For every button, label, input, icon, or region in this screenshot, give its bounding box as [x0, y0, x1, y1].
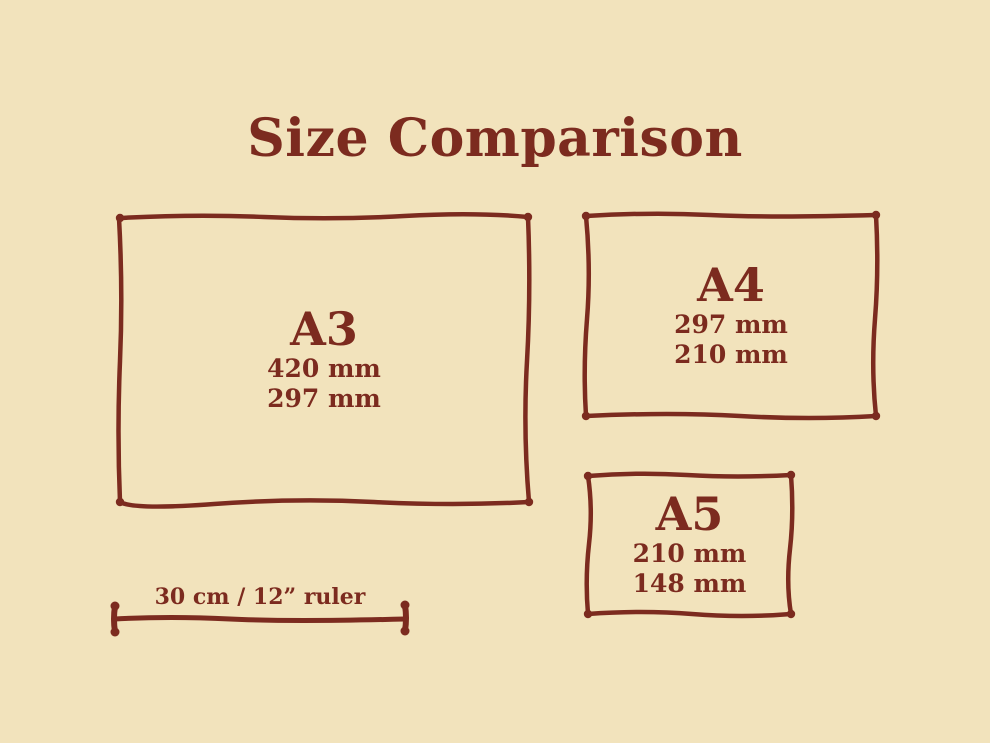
paper-a4-label: A4 297 mm 210 mm — [674, 261, 788, 370]
paper-a5-name: A5 — [633, 490, 747, 538]
paper-a3: A3 420 mm 297 mm — [114, 211, 534, 509]
paper-a5-width-dim: 210 mm — [633, 539, 747, 570]
canvas: Size Comparison A3 420 mm 297 mm A4 297 … — [0, 0, 990, 743]
paper-a4-width-dim: 297 mm — [674, 310, 788, 341]
paper-a3-name: A3 — [267, 305, 381, 353]
paper-a5-label: A5 210 mm 148 mm — [633, 490, 747, 599]
paper-a4: A4 297 mm 210 mm — [580, 209, 882, 423]
paper-a4-height-dim: 210 mm — [674, 340, 788, 371]
page-title: Size Comparison — [0, 110, 990, 167]
paper-a5: A5 210 mm 148 mm — [582, 469, 797, 621]
paper-a3-height-dim: 297 mm — [267, 384, 381, 415]
paper-a3-width-dim: 420 mm — [267, 354, 381, 385]
ruler-line — [110, 599, 410, 639]
paper-a5-height-dim: 148 mm — [633, 569, 747, 600]
paper-a3-label: A3 420 mm 297 mm — [267, 305, 381, 414]
paper-a4-name: A4 — [674, 261, 788, 309]
